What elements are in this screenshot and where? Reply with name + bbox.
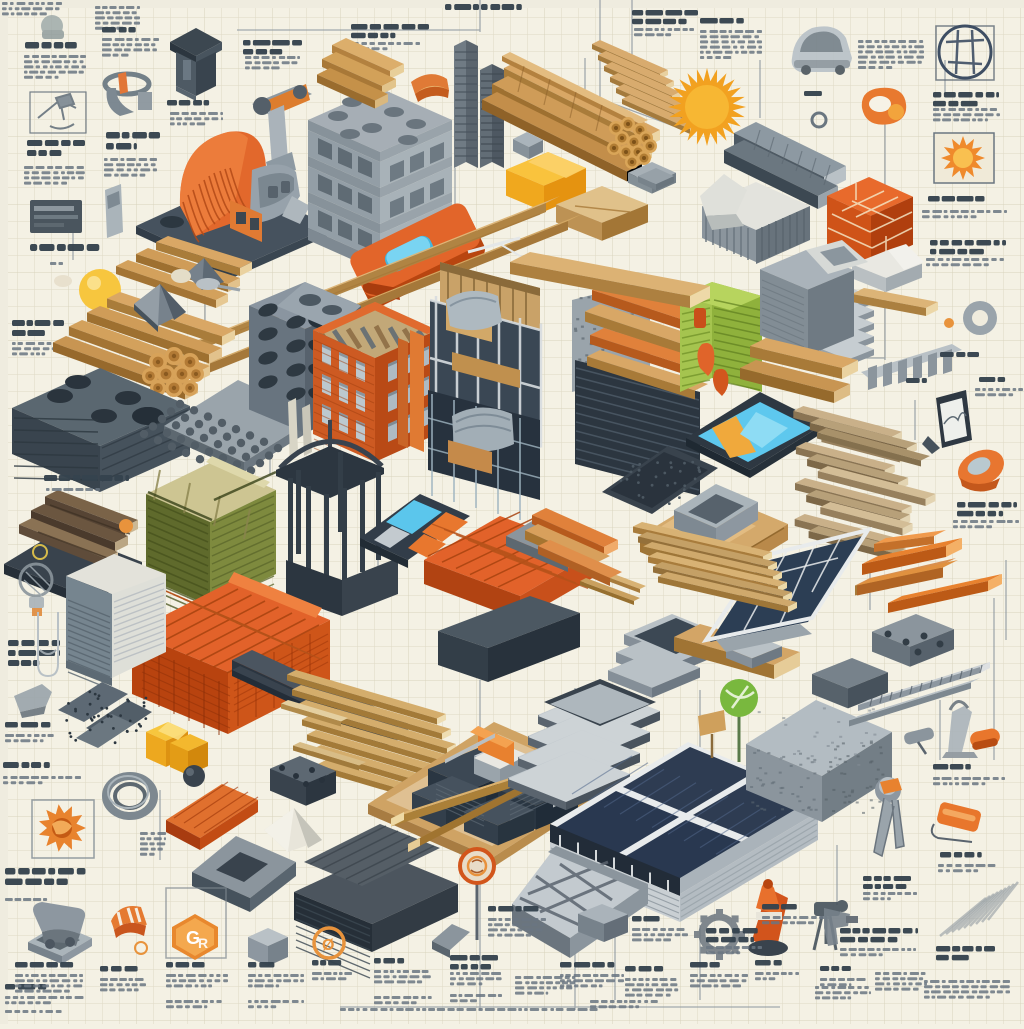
svg-text:Ø: Ø [322,937,334,954]
svg-text:R: R [198,935,208,951]
